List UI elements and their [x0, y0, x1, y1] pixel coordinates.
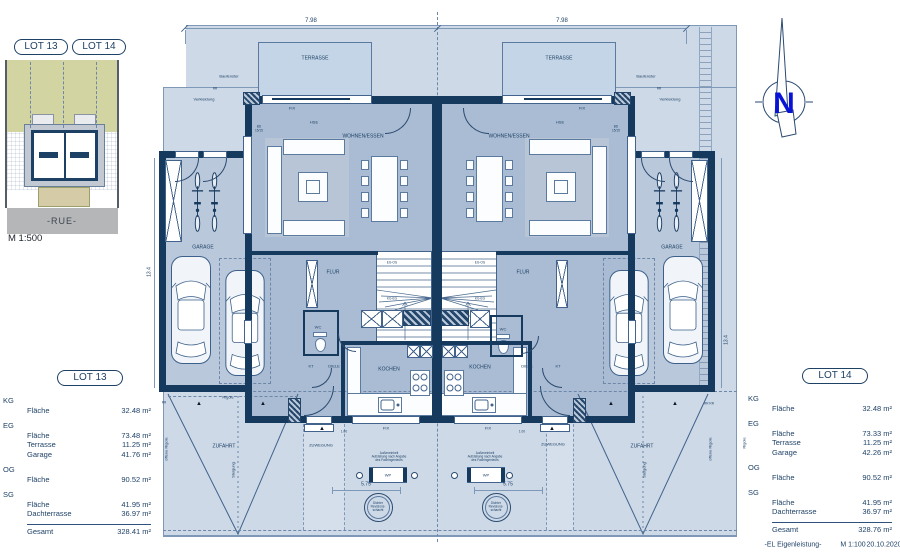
lot14-area-table: KGFläche32.48 m²EGFläche73.33 m²Terrasse…: [748, 388, 892, 534]
drain-hatch: [288, 398, 301, 423]
area-row: Fläche32.48 m²: [3, 406, 151, 416]
chair: [466, 160, 474, 170]
area-label: Dachterrasse: [772, 507, 817, 517]
dim-path: 1.00: [341, 430, 347, 433]
lot-front-dashline: [163, 530, 737, 531]
area-value: 73.48 m²: [121, 431, 151, 441]
chair: [361, 160, 369, 170]
rr-drain-hatch: [614, 92, 631, 105]
wp-label-right: WP: [483, 473, 489, 478]
kt-label-left: KT: [308, 364, 313, 369]
zufahrt-label-left: ZUFAHRT: [213, 443, 236, 449]
chair: [505, 176, 513, 186]
area-row: Fläche41.95 m²: [3, 500, 151, 510]
entry-marker-icon: ▲: [549, 426, 555, 432]
footer-credit: -EL Eigenleistung-: [765, 542, 822, 549]
closet: [382, 310, 403, 328]
note-line: schacht: [489, 509, 504, 513]
hp-cap: [467, 468, 471, 482]
chair: [466, 176, 474, 186]
siteplan-boundary-left: [5, 60, 7, 208]
area-value: 90.52 m²: [862, 473, 892, 483]
area-value: 42.26 m²: [862, 448, 892, 458]
wp-label-left: WP: [385, 473, 391, 478]
shaft-hatch: [441, 310, 469, 326]
area-value: 32.48 m²: [862, 404, 892, 414]
area-label: Fläche: [27, 475, 50, 485]
rr-labels-bottomright: RR RR: [704, 402, 714, 405]
walkway-right: [546, 424, 574, 530]
cooktop: [444, 370, 464, 396]
area-label: Garage: [27, 450, 52, 460]
note-line: des Fachingenieurs: [372, 459, 407, 463]
cabinet: [455, 345, 468, 358]
garage-door-left: [203, 151, 227, 158]
sofa: [529, 139, 591, 155]
bd-annotation: BD 15/15: [612, 125, 620, 132]
garage-shelf-right: [691, 160, 708, 242]
fix-label: FIX: [289, 106, 295, 111]
siteplan-guide: [96, 62, 97, 128]
lot-front-edge: [163, 536, 737, 537]
chair: [505, 192, 513, 202]
chair: [466, 192, 474, 202]
sofa: [283, 139, 345, 155]
closet: [306, 260, 318, 308]
flur-label-left: FLUR: [326, 269, 339, 275]
lot13-title-pill: LOT 13: [57, 370, 123, 386]
terrace-right: [502, 42, 616, 102]
floor-level-label: KG: [748, 394, 892, 404]
interior-wall: [528, 341, 532, 420]
floor-level-label: SG: [3, 490, 151, 500]
side-window-right: [628, 320, 636, 344]
terrasse-label-right: TERRASSE: [546, 55, 573, 61]
fix-label-bottom: FIX: [383, 426, 389, 431]
wc-label-left: WC: [315, 325, 322, 330]
sideboard: [267, 146, 282, 234]
total-row: Gesamt328.76 m²: [772, 522, 892, 535]
valve: [506, 472, 513, 479]
lot14-pill: LOT 14: [72, 39, 126, 55]
lot13-area-table: KGFläche32.48 m²EGFläche73.48 m²Terrasse…: [3, 390, 151, 536]
garage-wall-bottom-right: [629, 385, 715, 392]
slider-leaf: [272, 98, 350, 100]
stair-label-lower: KG-EG: [475, 297, 485, 300]
floor-level-label: SG: [748, 488, 892, 498]
cabinet: [442, 345, 455, 358]
area-label: Fläche: [772, 498, 795, 508]
zuwegung-label-left: ZUWEGUNG: [309, 443, 333, 448]
chair: [400, 208, 408, 218]
street-label: -RUE-: [47, 216, 77, 226]
coffee-table-inner: [306, 180, 320, 194]
note-line: 15/15: [612, 129, 620, 133]
dim-width-right: 7.98: [556, 18, 568, 24]
diele-label-left: DIELE: [328, 364, 340, 369]
interior-wall: [252, 251, 378, 255]
note-line: des Fachingenieurs: [468, 459, 503, 463]
wc-room-right: [490, 315, 523, 357]
direction-marker-icon: ▲: [260, 401, 266, 407]
area-label: Fläche: [772, 404, 795, 414]
wohnen-label-left: WOHNEN/ESSEN: [342, 133, 383, 139]
area-value: 32.48 m²: [121, 406, 151, 416]
dim-entry-left: 5.75: [361, 481, 371, 487]
diele-label-right: DIELE: [521, 364, 533, 369]
dim-entry-right: 5.75: [503, 481, 513, 487]
area-label: Terrasse: [27, 440, 56, 450]
area-row: Fläche90.52 m²: [3, 475, 151, 485]
garage-door-right: [641, 151, 665, 158]
area-row: Terrasse11.25 m²: [748, 438, 892, 448]
total-value: 328.76 m²: [858, 525, 892, 535]
steigung-label-left: Steigung: [231, 462, 236, 478]
closet: [556, 260, 568, 308]
dim-end: [542, 487, 543, 494]
wc-label-right: WC: [500, 327, 507, 332]
area-value: 36.97 m²: [862, 507, 892, 517]
blueprint-canvas: LOT 13 LOT 14 -RUE- M 1:500 7.98 7.98 13…: [0, 0, 900, 555]
area-value: 41.95 m²: [862, 498, 892, 508]
dim-line-right: [721, 158, 722, 388]
stair-label-upper: EG-OG: [475, 261, 486, 264]
garage-door-left: [175, 151, 199, 158]
stair-left: [376, 251, 432, 343]
note-line: 15/15: [255, 129, 263, 133]
shaft-hatch: [403, 310, 431, 326]
footer-date: 20.10.2020: [866, 542, 900, 549]
drain-hatch: [573, 398, 586, 423]
siteplan-guide: [63, 62, 64, 128]
coffee-table-inner: [554, 180, 568, 194]
chair: [361, 192, 369, 202]
total-label: Gesamt: [772, 525, 798, 535]
entry-door-right: [542, 416, 568, 424]
area-label: Terrasse: [772, 438, 801, 448]
north-arrow: N: [742, 14, 824, 144]
outdoor-unit-note-left: Außeneinheit Aufstellung nach Angabe des…: [372, 452, 407, 463]
terrace-left: [258, 42, 372, 102]
chair: [505, 208, 513, 218]
offene-rigole-label-left: offene Rigole: [164, 437, 169, 461]
area-value: 36.97 m²: [121, 509, 151, 519]
area-label: Garage: [772, 448, 797, 458]
area-value: 11.25 m²: [863, 438, 892, 448]
dim-line-entry-right: [474, 490, 542, 491]
siteplan-drive: [38, 187, 90, 207]
stair-label-lower: KG-EG: [387, 297, 397, 300]
chair: [505, 160, 513, 170]
area-value: 41.76 m²: [121, 450, 151, 460]
fix-label: FIX: [579, 106, 585, 111]
chair: [400, 160, 408, 170]
wc-window-left: [244, 320, 252, 344]
siteplan-scale-label: M 1:500: [8, 233, 42, 244]
baufenster-line-left: [163, 87, 258, 88]
dim-end: [474, 487, 475, 494]
note-line: schacht: [371, 509, 386, 513]
floor-level-label: OG: [3, 465, 151, 475]
siteplan-party-wall: [64, 131, 66, 180]
sofa: [529, 220, 591, 236]
dim-ext: [686, 30, 687, 44]
dining-table: [476, 156, 503, 222]
car-garage-left: [169, 254, 213, 366]
garage-wall-bottom-left: [159, 385, 245, 392]
garage-label-left: GARAGE: [192, 244, 213, 250]
interior-wall: [341, 341, 345, 420]
dim-width-left: 7.98: [305, 18, 317, 24]
direction-marker-icon: ▲: [608, 401, 614, 407]
interior-wall: [496, 251, 628, 255]
sideboard: [592, 146, 607, 234]
baufenster-label-right: Baufenster: [636, 74, 655, 79]
closet: [470, 310, 490, 328]
area-label: Fläche: [27, 431, 50, 441]
area-row: Terrasse11.25 m²: [3, 440, 151, 450]
area-row: Fläche73.33 m²: [748, 429, 892, 439]
cooktop: [410, 370, 430, 396]
sink: [378, 397, 402, 413]
floor-level-label: EG: [748, 419, 892, 429]
siteplan-boundary-right: [117, 60, 119, 208]
closet: [361, 310, 382, 328]
entry-step-right: [540, 424, 570, 432]
siteplan-roof-bar: [70, 152, 89, 158]
sink: [472, 397, 496, 413]
floor-level-label: KG: [3, 396, 151, 406]
outdoor-unit-note-right: Außeneinheit Aufstellung nach Angabe des…: [468, 452, 503, 463]
hse-label: HSE: [556, 120, 564, 125]
garage-door-right: [669, 151, 693, 158]
wohnen-label-right: WOHNEN/ESSEN: [488, 133, 529, 139]
direction-marker-icon: ▲: [672, 401, 678, 407]
dim-end: [332, 487, 333, 494]
party-wall: [432, 96, 442, 423]
hp-cap: [501, 468, 505, 482]
total-row: Gesamt328.41 m²: [27, 524, 151, 537]
area-row: Garage42.26 m²: [748, 448, 892, 458]
living-window-right: [627, 136, 636, 234]
car-garage-right: [661, 254, 705, 366]
dim-ext: [185, 30, 186, 44]
rr-label-topright: RR: [657, 87, 662, 90]
area-value: 90.52 m²: [121, 475, 151, 485]
bicycle: [670, 170, 683, 234]
garage-wall-outer-right: [708, 151, 715, 392]
fix-label-bottom: FIX: [485, 426, 491, 431]
rr-drain-hatch: [243, 92, 260, 105]
valve: [451, 472, 458, 479]
cabinet: [407, 345, 420, 358]
chair: [361, 176, 369, 186]
shaft-note-right: Dichter Revisions- schacht: [489, 502, 504, 513]
area-label: Fläche: [27, 406, 50, 416]
walkway-left: [303, 424, 345, 530]
total-value: 328.41 m²: [117, 527, 151, 537]
dim-path: 1.00: [519, 430, 525, 433]
kochen-label-left: KOCHEN: [378, 366, 399, 372]
verkleidung-label-left: Verkleidung: [194, 97, 215, 102]
area-value: 73.33 m²: [862, 429, 892, 439]
area-value: 11.25 m²: [122, 440, 151, 450]
chair: [400, 192, 408, 202]
total-label: Gesamt: [27, 527, 53, 537]
area-row: Fläche73.48 m²: [3, 431, 151, 441]
valve: [411, 472, 418, 479]
stair-label-upper: EG-OG: [387, 261, 398, 264]
steigung-label-right: Steigung: [642, 462, 647, 478]
kitchen-fix-window-left: [352, 416, 420, 424]
garage-label-right: GARAGE: [661, 244, 682, 250]
area-row: Garage41.76 m²: [3, 450, 151, 460]
direction-marker-icon: ▲: [196, 401, 202, 407]
entry-door-left: [306, 416, 332, 424]
footer-scale: M 1:100: [840, 542, 865, 549]
area-label: Fläche: [772, 429, 795, 439]
shaft-note-left: Dichter Revisions- schacht: [371, 502, 386, 513]
area-label: Fläche: [772, 473, 795, 483]
entry-marker-icon: ▲: [319, 426, 325, 432]
terrasse-label-left: TERRASSE: [302, 55, 329, 61]
area-row: Dachterrasse36.97 m²: [748, 507, 892, 517]
flur-label-right: FLUR: [516, 269, 529, 275]
lot-notch: [163, 25, 186, 87]
area-row: Fläche90.52 m²: [748, 473, 892, 483]
garage-wall-top-left: [159, 151, 245, 158]
verkleidung-label-right: Verkleidung: [660, 97, 681, 102]
cabinet: [420, 345, 433, 358]
zufahrt-label-right: ZUFAHRT: [631, 443, 654, 449]
chair: [400, 176, 408, 186]
hse-label: HSE: [310, 120, 318, 125]
baufenster-line-right: [616, 87, 737, 88]
floor-level-label: EG: [3, 421, 151, 431]
siteplan-guide: [30, 62, 31, 128]
floor-level-label: OG: [748, 463, 892, 473]
stair-right: [441, 251, 497, 343]
lot14-title-pill: LOT 14: [802, 368, 868, 384]
area-label: Dachterrasse: [27, 509, 72, 519]
wc-room-left: [303, 310, 339, 356]
kitchen-fix-window-right: [454, 416, 522, 424]
bd-annotation: BD 15/15: [255, 125, 263, 132]
living-window-left: [243, 136, 252, 234]
chair: [361, 208, 369, 218]
area-row: Dachterrasse36.97 m²: [3, 509, 151, 519]
sofa: [283, 220, 345, 236]
siteplan-roof-bar: [39, 152, 58, 158]
offene-rigole-label-right: offene Rigole: [708, 437, 713, 461]
hp-cap: [403, 468, 407, 482]
north-letter: N: [773, 87, 795, 120]
dim-depth-right: 13.4: [723, 335, 729, 345]
dim-line-left: [154, 158, 155, 388]
area-row: Fläche32.48 m²: [748, 404, 892, 414]
rigole-label-outside: Rigole: [742, 437, 747, 448]
area-value: 41.95 m²: [121, 500, 151, 510]
slider-leaf: [524, 98, 602, 100]
kt-label-right: KT: [555, 364, 560, 369]
rr-label-topleft: RR: [213, 87, 218, 90]
lot13-pill: LOT 13: [14, 39, 68, 55]
rigole-label: Rigole: [222, 395, 233, 400]
area-label: Fläche: [27, 500, 50, 510]
dining-table: [371, 156, 398, 222]
area-row: Fläche41.95 m²: [748, 498, 892, 508]
dim-line-entry-left: [332, 490, 400, 491]
kochen-label-right: KOCHEN: [469, 364, 490, 370]
zuwegung-label-right: ZUWEGUNG: [541, 442, 565, 447]
dim-end: [400, 487, 401, 494]
hp-cap: [369, 468, 373, 482]
valve: [356, 472, 363, 479]
dim-depth-left: 13.4: [146, 267, 152, 277]
baufenster-label-left: Baufenster: [219, 74, 238, 79]
rr-label-bottomleft: RR: [162, 401, 167, 404]
chair: [466, 208, 474, 218]
